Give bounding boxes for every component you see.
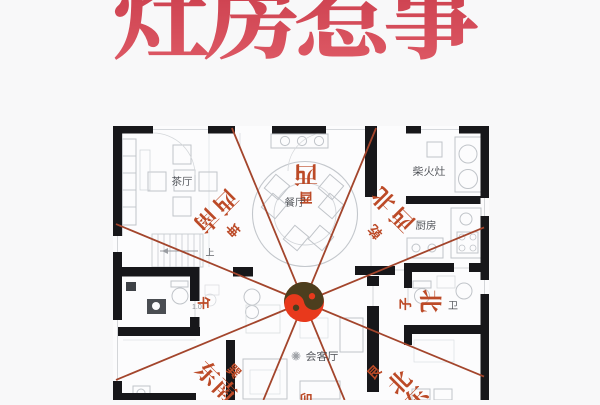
svg-text:1.0: 1.0 [192,304,202,311]
